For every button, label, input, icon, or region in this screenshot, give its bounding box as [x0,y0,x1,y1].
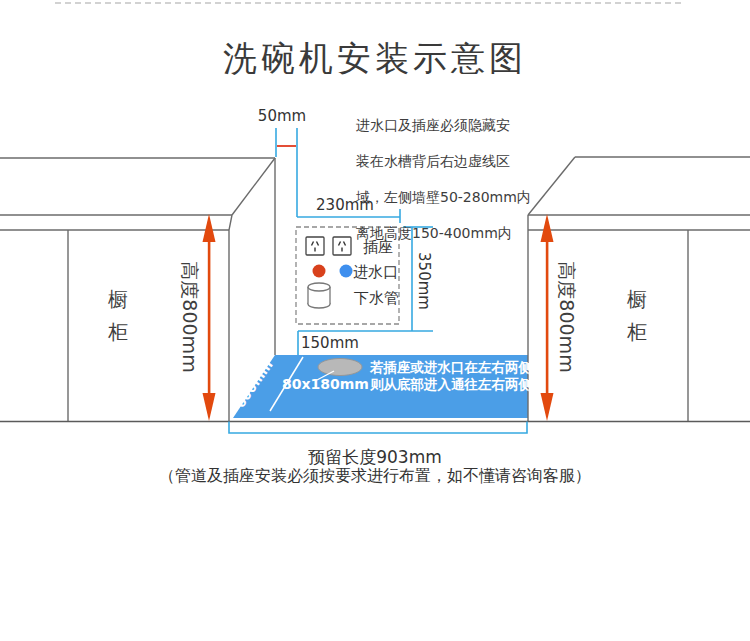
caution-note: （管道及插座安装必须按要求进行布置，如不懂请咨询客服） [0,466,750,487]
cabinet-left-outline [0,158,275,421]
arrow-shaft [208,239,211,396]
water-inlet-label: 进水口 [353,263,398,282]
dim-150mm-label: 150mm [301,334,359,352]
reserve-length-bracket [229,422,527,434]
cabinet-right-label: 橱柜 [625,283,649,349]
floor-note: 若插座或进水口在左右两侧 则从底部进入通往左右两侧 [370,359,532,393]
hole-size-label: 80x180mm [282,376,366,392]
page-title: 洗碗机安装示意图 [0,36,750,82]
floor-note-line1: 若插座或进水口在左右两侧 [370,359,532,375]
cabinet-left-right-edge [229,215,232,421]
arrow-shaft [546,239,549,396]
socket-label: 插座 [363,238,393,257]
installation-diagram: 洗碗机安装示意图 50mm 进水口及插座必须隐藏安 装在水槽背后右边虚线区 域，… [0,0,750,641]
install-note-line1: 进水口及插座必须隐藏安 [356,117,510,133]
cabinet-right-corner-diagonal [528,157,575,215]
socket-icon-1 [306,237,324,255]
red-dot-icon [313,265,326,278]
cabinet-left-corner-diagonal [232,158,275,215]
arrow-up-head [541,214,554,242]
socket-icon-2 [333,237,351,255]
arrow-up-head [203,214,216,242]
arrow-down-head [203,393,216,421]
install-note: 进水口及插座必须隐藏安 装在水槽背后右边虚线区 域，左侧墙壁50-280mm内 … [356,116,531,242]
cabinet-left-label: 橱柜 [106,283,130,349]
install-note-line3: 域，左侧墙壁50-280mm内 [356,189,531,205]
socket-icons [306,237,351,255]
install-note-line2: 装在水槽背后右边虚线区 [356,153,510,169]
height-label-left: 高度800mm [176,261,202,372]
pipe-cylinder-icon [308,283,330,308]
dim-350mm-label: 350mm [415,252,433,310]
dim-230mm-label: 230mm [310,196,380,214]
drain-pipe-label: 下水管 [354,289,399,308]
height-arrow-left [203,214,216,421]
floor-hole-icon [318,359,362,376]
floor-note-line2: 则从底部进入通往左右两侧 [370,376,532,392]
height-label-right: 高度800mm [553,261,579,372]
height-arrow-right [541,214,554,421]
arrow-down-head [541,393,554,421]
dim-50mm-label: 50mm [252,107,312,125]
blue-dot-icon [340,265,353,278]
